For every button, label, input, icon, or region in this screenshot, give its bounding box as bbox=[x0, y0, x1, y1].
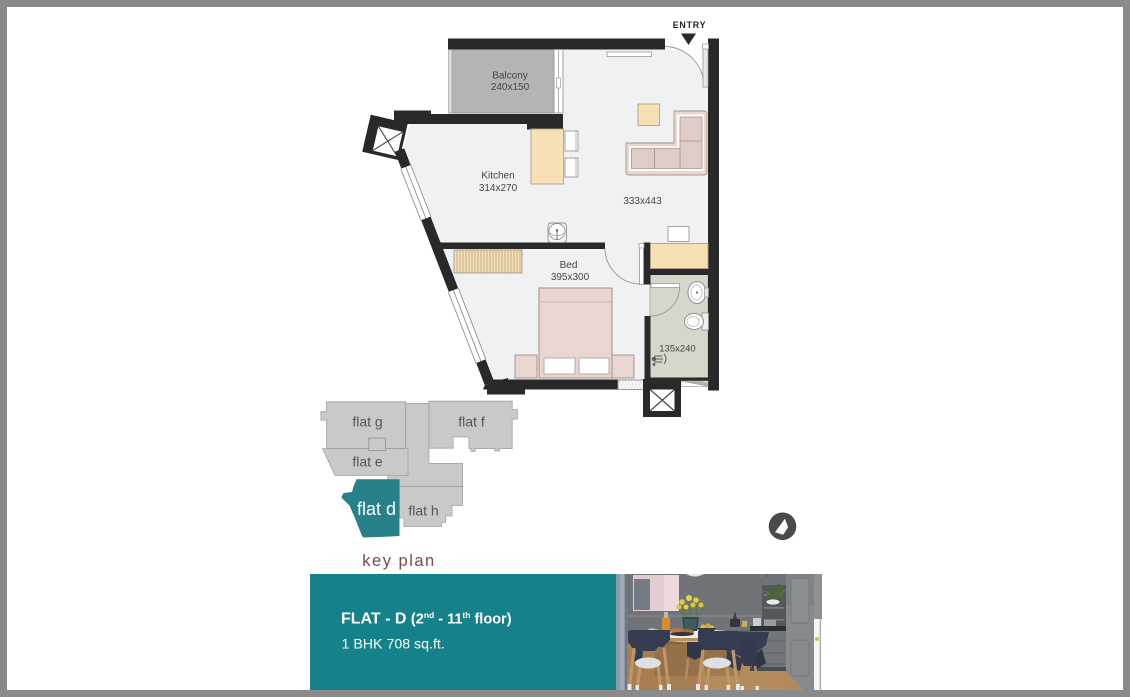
svg-text:flat g: flat g bbox=[352, 414, 382, 430]
svg-text:135x240: 135x240 bbox=[659, 344, 695, 355]
svg-text:ENTRY: ENTRY bbox=[673, 20, 707, 30]
svg-text:flat h: flat h bbox=[408, 503, 438, 519]
svg-text:flat f: flat f bbox=[458, 414, 485, 430]
svg-text:key plan: key plan bbox=[362, 552, 435, 570]
svg-text:333x443: 333x443 bbox=[623, 196, 662, 207]
svg-text:Balcony: Balcony bbox=[492, 71, 528, 82]
svg-text:Bed: Bed bbox=[560, 260, 578, 271]
svg-text:240x150: 240x150 bbox=[491, 82, 530, 93]
svg-text:314x270: 314x270 bbox=[479, 183, 518, 194]
svg-text:flat d: flat d bbox=[357, 499, 396, 519]
svg-text:flat e: flat e bbox=[352, 454, 383, 470]
svg-text:395x300: 395x300 bbox=[551, 272, 590, 283]
svg-text:Kitchen: Kitchen bbox=[481, 171, 514, 182]
svg-text:1 BHK 708 sq.ft.: 1 BHK 708 sq.ft. bbox=[342, 637, 445, 653]
